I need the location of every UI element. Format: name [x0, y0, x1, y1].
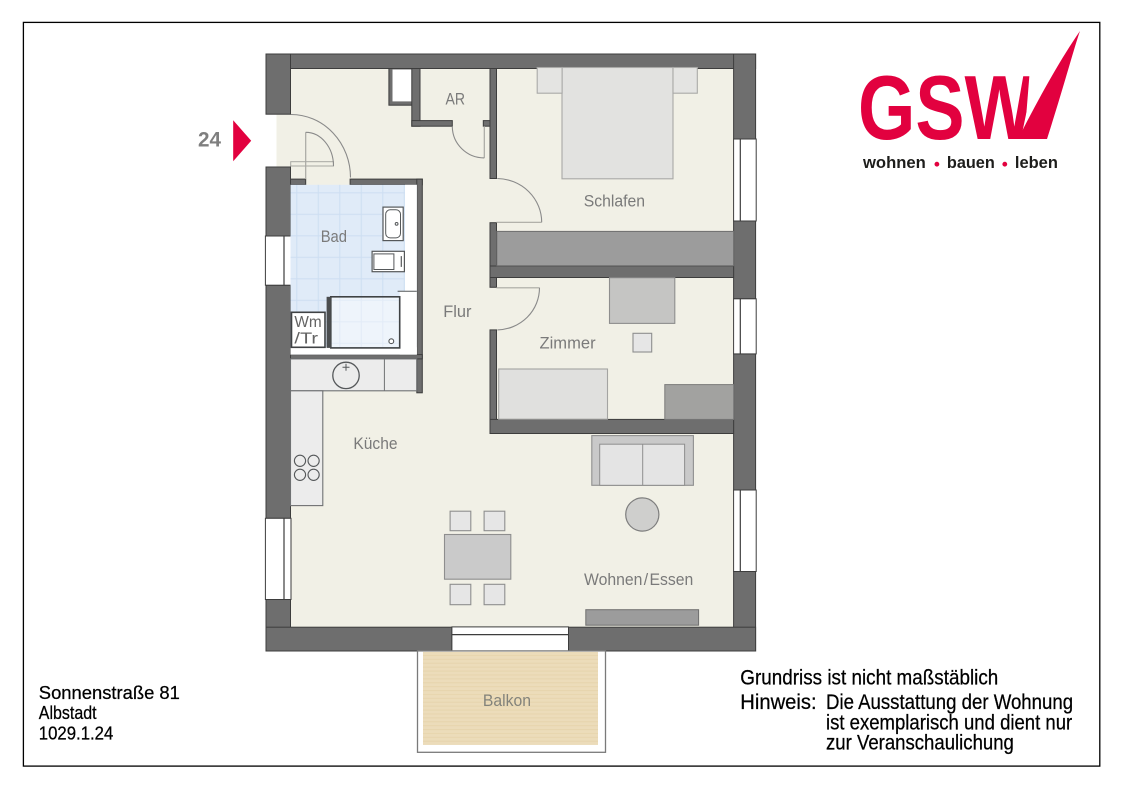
svg-text:Wohnen / Essen: Wohnen / Essen	[584, 570, 693, 589]
svg-text:Hinweis:: Hinweis:	[740, 691, 816, 714]
svg-text:Grundriss ist nicht maßstäblic: Grundriss ist nicht maßstäblich	[740, 666, 998, 689]
svg-text:Küche: Küche	[353, 434, 397, 453]
svg-text:/Tr: /Tr	[294, 331, 318, 348]
svg-text:zur Veranschaulichung: zur Veranschaulichung	[826, 732, 1014, 755]
svg-text:GSW: GSW	[858, 56, 1035, 158]
svg-text:Albstadt: Albstadt	[39, 702, 97, 723]
svg-text:leben: leben	[1015, 153, 1058, 172]
svg-text:Zimmer: Zimmer	[540, 334, 596, 353]
svg-text:AR: AR	[446, 90, 466, 109]
svg-text:wohnen: wohnen	[862, 153, 926, 172]
svg-text:Sonnenstraße 81: Sonnenstraße 81	[39, 682, 180, 703]
svg-text:Schlafen: Schlafen	[584, 191, 645, 210]
svg-text:Bad: Bad	[321, 227, 347, 246]
svg-text:Balkon: Balkon	[483, 691, 531, 710]
svg-text:Flur: Flur	[443, 302, 472, 321]
svg-text:bauen: bauen	[947, 153, 995, 172]
svg-text:1029.1.24: 1029.1.24	[39, 722, 114, 743]
svg-text:24: 24	[198, 128, 221, 151]
svg-text:Wm: Wm	[294, 314, 321, 331]
